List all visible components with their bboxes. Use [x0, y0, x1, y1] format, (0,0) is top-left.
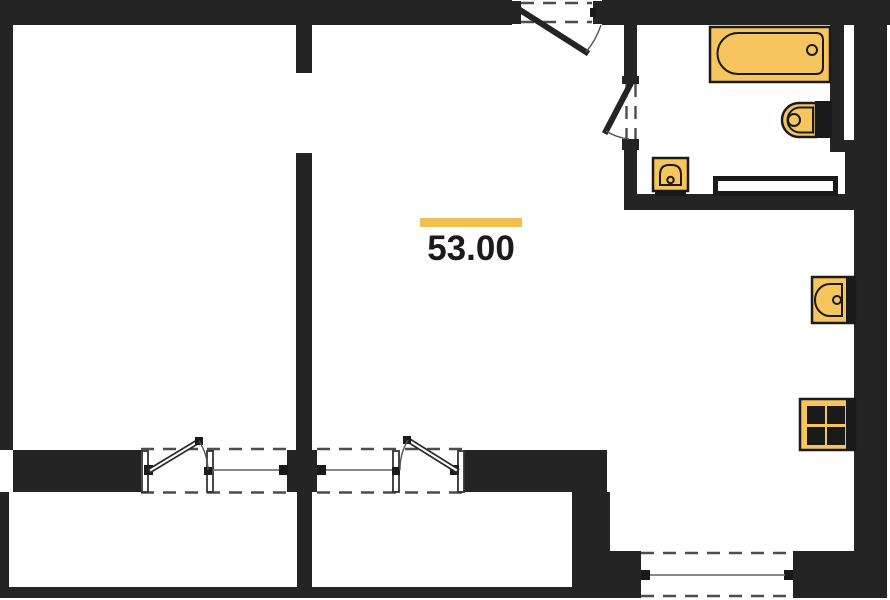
walls — [0, 0, 890, 598]
bottom-window-jamb-left — [630, 551, 641, 598]
entrance-latch — [590, 8, 596, 17]
kitchen-sink-back — [846, 277, 855, 323]
stove — [800, 399, 855, 450]
wall-balcony-divider — [297, 492, 312, 588]
wall-window-band-pier — [287, 450, 317, 492]
area-highlight-bar — [420, 218, 522, 227]
entrance-door-swing-arc — [586, 25, 601, 52]
window1-sill-stop — [279, 465, 288, 475]
toilet — [782, 101, 832, 138]
washbasin — [653, 158, 688, 196]
radiator — [713, 176, 838, 196]
area-label: 53.00 — [401, 231, 541, 266]
wall-bottom-strip — [0, 587, 614, 598]
radiator-slot — [718, 181, 833, 191]
floor-plan-drawing — [0, 0, 890, 600]
bottom-window-jamb-right — [793, 551, 803, 598]
wall-bathroom-lower — [624, 150, 637, 196]
wall-left — [0, 25, 13, 450]
wall-niche-strip — [830, 23, 844, 142]
stove-back — [846, 399, 855, 450]
wall-window-band-left — [13, 450, 141, 492]
window3-stop-right — [784, 570, 793, 580]
balcony-door-left-leaf-inner — [151, 441, 199, 470]
toilet-tank — [815, 101, 832, 138]
wall-bottom-window-left — [610, 551, 631, 598]
entrance-door-leaf — [520, 10, 586, 52]
window-living-room — [317, 436, 464, 493]
bathtub — [710, 27, 830, 82]
wall-step — [572, 492, 610, 598]
kitchen-sink — [812, 277, 855, 323]
stove-burner-1 — [807, 406, 825, 424]
window-bottom — [641, 553, 793, 596]
wall-top-left — [0, 0, 512, 25]
window-left-room — [141, 437, 288, 493]
wall-left-balcony — [0, 492, 9, 592]
bathroom-door-jamb-bottom — [622, 139, 639, 150]
balcony-door-right-arc — [400, 440, 408, 470]
wall-bathroom-bottom — [624, 194, 856, 210]
window2-sill-stop — [317, 465, 326, 475]
wall-room-divider-lower — [296, 153, 312, 450]
wall-window-band-right — [464, 450, 607, 492]
stove-burner-3 — [807, 427, 825, 445]
floor-plan: 53.00 — [0, 0, 890, 600]
wall-right — [854, 0, 887, 598]
window2-frame-stop — [392, 467, 400, 475]
wall-bathroom-upper — [624, 25, 637, 76]
balcony-door-right-leaf-inner — [408, 440, 456, 470]
window3-stop-left — [641, 570, 650, 580]
washbasin-body — [653, 158, 688, 191]
wall-room-divider-upper — [296, 25, 312, 73]
stove-burner-4 — [827, 427, 845, 445]
entrance-door — [520, 3, 601, 52]
bathroom-door — [606, 84, 636, 139]
wall-top-right — [602, 0, 890, 25]
stove-burner-2 — [827, 406, 845, 424]
